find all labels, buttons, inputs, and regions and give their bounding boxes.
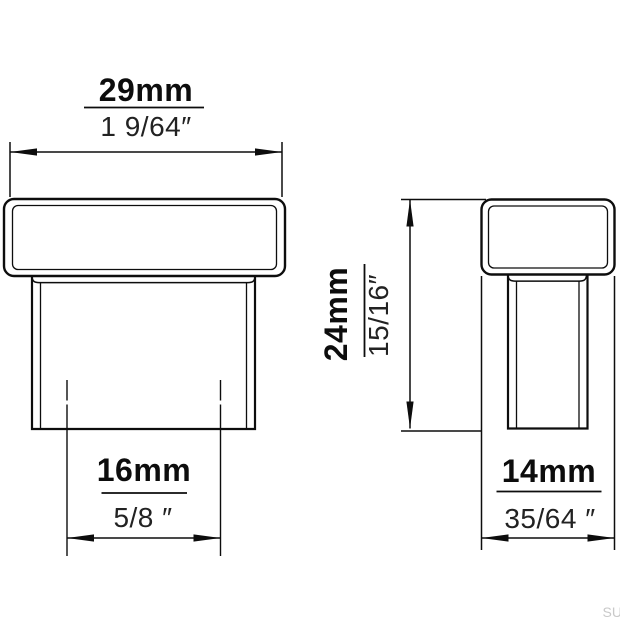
cap-outline-side [482,200,615,275]
dim-arrowhead-right [588,534,615,541]
technical-drawing-page: 29mm 1 9/64″ 16mm 5/8 ″ [0,0,620,620]
label-width-inch: 1 9/64″ [100,111,191,142]
dim-arrowhead-down [406,402,413,429]
dim-arrowhead-left [482,534,509,541]
cap-face-side [489,206,608,268]
front-view: 29mm 1 9/64″ 16mm 5/8 ″ [4,72,285,556]
dim-arrowhead-right [194,534,221,541]
label-width-mm: 29mm [99,72,194,108]
body-outline-front [32,276,255,429]
label-depth-inch: 35/64 ″ [504,503,595,534]
body-shoulder-front [32,277,255,283]
watermark-text: SU [603,604,620,620]
body-shoulder-side [508,276,587,282]
knob-dimension-drawing: 29mm 1 9/64″ 16mm 5/8 ″ [0,0,620,620]
cap-face-front [13,206,277,270]
label-height-inch: 15/16″ [363,274,394,357]
label-depth-mm: 14mm [502,453,597,489]
label-boss-mm: 16mm [97,452,192,488]
label-boss-inch: 5/8 ″ [113,502,172,533]
dimension-16mm: 16mm 5/8 ″ [67,380,221,556]
label-height-mm: 24mm [318,267,354,362]
cap-outline-front [4,199,285,276]
dimension-29mm: 29mm 1 9/64″ [10,72,282,197]
dim-arrowhead-right [255,148,282,155]
dimension-24mm: 24mm 15/16″ [318,200,486,432]
body-outline-side [508,275,588,429]
dimension-14mm: 14mm 35/64 ″ [482,276,615,550]
dim-arrowhead-left [67,534,94,541]
dim-arrowhead-up [406,200,413,227]
side-view: 24mm 15/16″ 14mm 35/64 ″ [318,200,615,551]
dim-arrowhead-left [10,148,37,155]
